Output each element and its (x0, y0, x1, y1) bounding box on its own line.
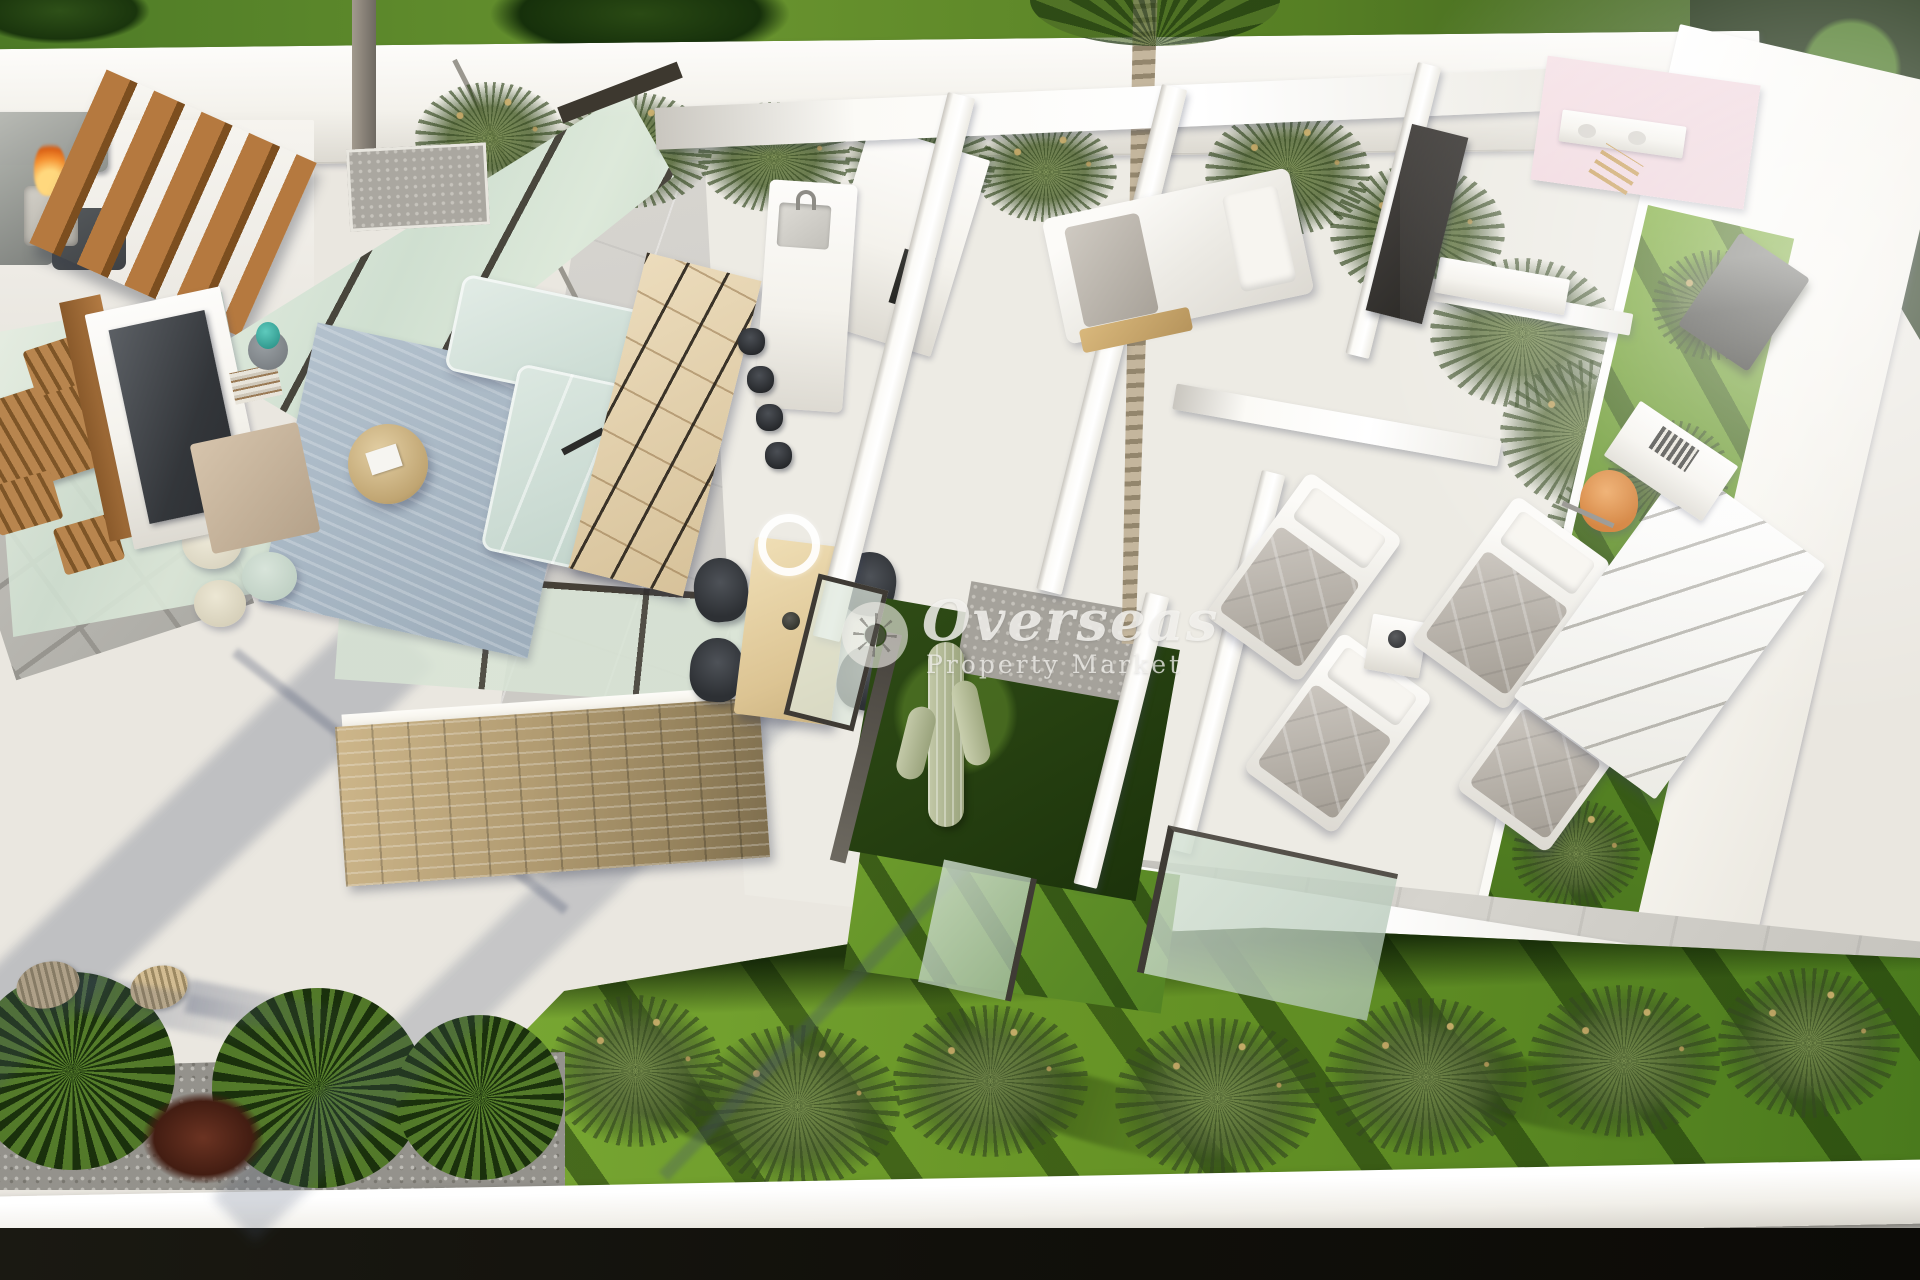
garden-tree-trunk (352, 0, 376, 162)
bar-stool (756, 404, 783, 431)
bed-pillow (1222, 185, 1296, 292)
ornamental-grass (893, 1005, 1088, 1157)
watermark-tagline: Property Market (926, 650, 1182, 679)
sun-icon (842, 602, 908, 668)
ornamental-grass (1528, 985, 1720, 1137)
ornamental-grass (1718, 968, 1900, 1118)
table-lamp (1388, 630, 1406, 648)
street-ground (0, 1228, 1920, 1280)
bar-stool (738, 328, 765, 355)
watermark-brand: Overseas (922, 588, 1219, 654)
bar-stool (747, 366, 774, 393)
pouf-cream (194, 580, 246, 627)
ornamental-grass (1325, 998, 1527, 1156)
stone-feature-wall (335, 697, 770, 886)
table-vase (782, 612, 800, 630)
bar-stool (765, 442, 792, 469)
teal-decor-vase (256, 322, 280, 349)
ornamental-grass (1115, 1018, 1320, 1178)
bed-throw (1064, 212, 1159, 328)
tree-gravel-square (346, 142, 490, 231)
pouf-mint (242, 552, 297, 601)
villa-3d-floorplan-render: Overseas Property Market (0, 0, 1920, 1280)
island-faucet (796, 190, 816, 210)
watermark: Overseas Property Market (842, 592, 1302, 692)
pendant-light-ring (758, 514, 820, 576)
media-console (190, 422, 321, 554)
